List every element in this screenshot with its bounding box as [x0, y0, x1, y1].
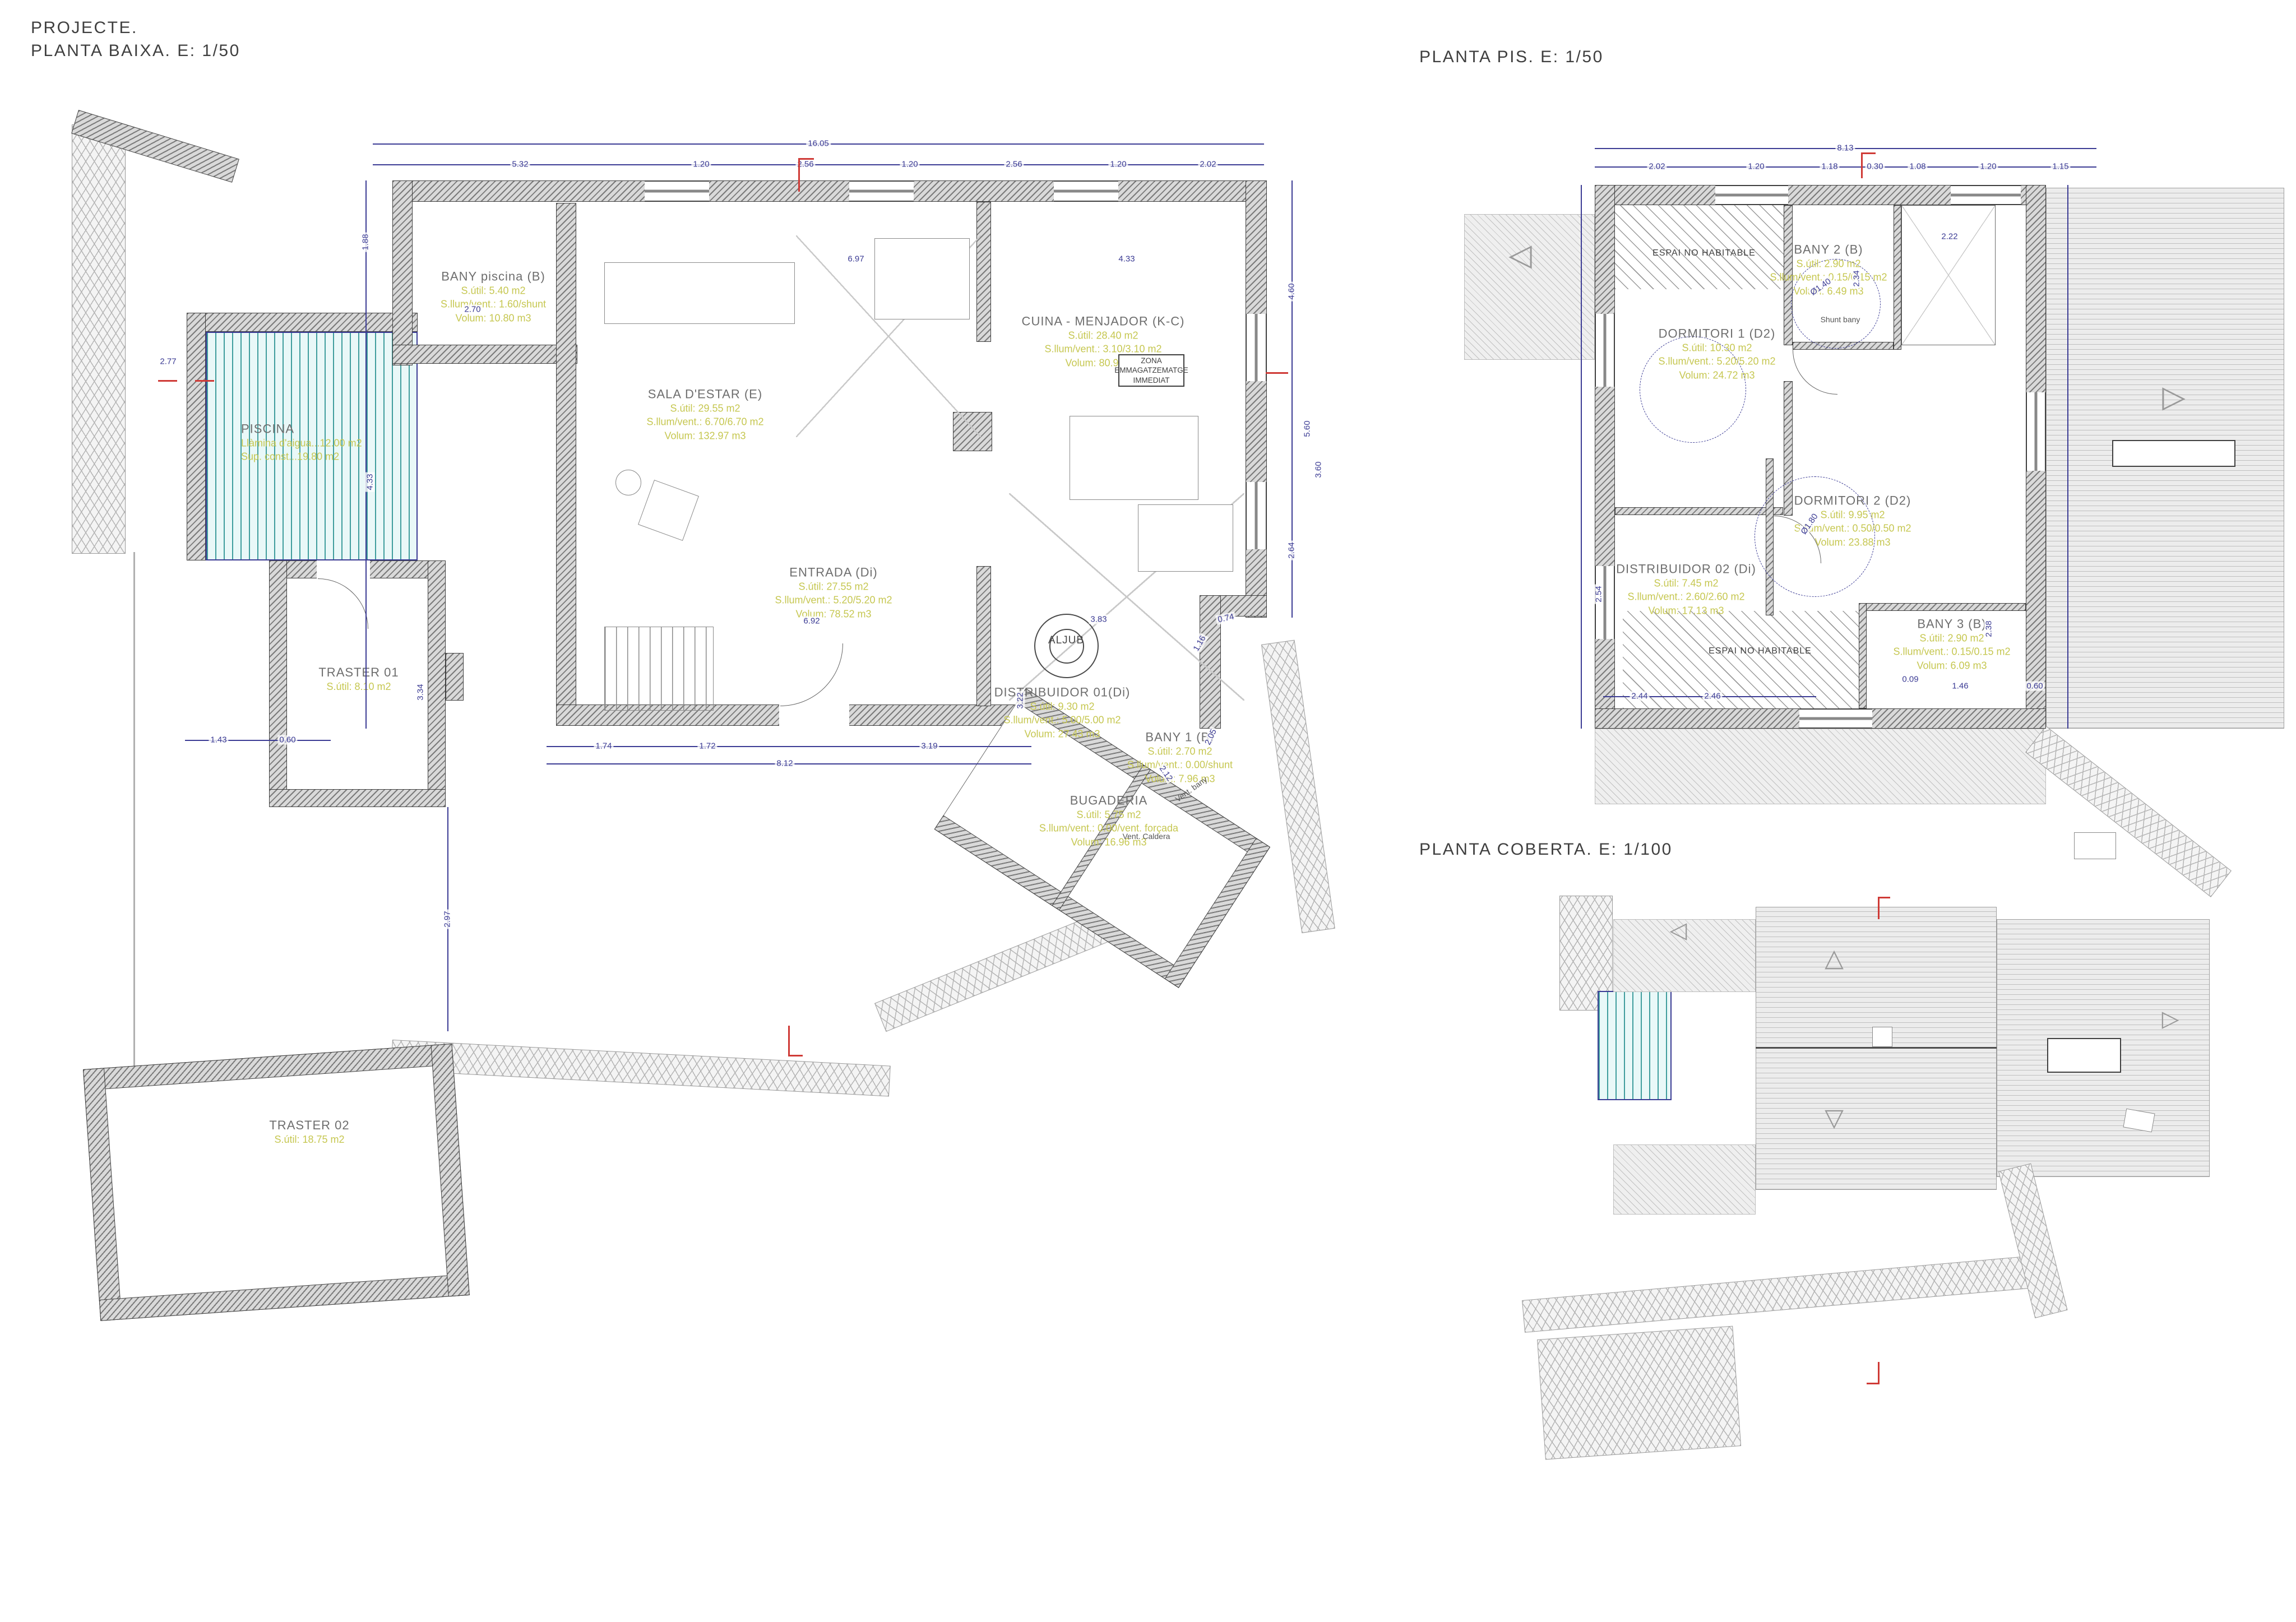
room-metric: S.útil: 7.45 m2 [1616, 577, 1756, 590]
shunt-bany-label: Shunt bany [1821, 315, 1860, 324]
dim-label: 2.56 [1004, 160, 1024, 169]
interior-wall [976, 566, 991, 706]
room-metric: Volum: 10.80 m3 [441, 311, 546, 325]
room-metric: S.llum/vent.: 0.00/shunt [1127, 758, 1233, 772]
window [1246, 482, 1267, 549]
room-metric: Volum: 17.13 m3 [1616, 604, 1756, 617]
armchair [638, 480, 699, 541]
interior-wall [1894, 205, 1901, 350]
wall-segment [428, 560, 446, 807]
cabinet [874, 238, 970, 319]
dim-label: 0.09 [1900, 675, 1920, 684]
room-metric: S.útil: 9.30 m2 [994, 700, 1131, 713]
pool-wall [187, 313, 418, 332]
room-metric: S.útil: 28.40 m2 [1022, 329, 1185, 342]
dim-label: 2.02 [1647, 162, 1667, 172]
zona-line: EMMAGATZEMATGE [1114, 365, 1188, 376]
dim-label: 1.74 [594, 742, 613, 751]
dim-label: 3.83 [1089, 615, 1108, 624]
door-swing [780, 643, 843, 706]
dim-label: 1.20 [1746, 162, 1766, 172]
dimension-line [365, 180, 367, 729]
dim-label: 1.20 [691, 160, 711, 169]
window [2026, 392, 2046, 471]
section-mark [1867, 1383, 1880, 1384]
room-name: DORMITORI 2 (D2) [1794, 494, 1911, 508]
room-metric: Volum: 78.52 m3 [775, 607, 892, 620]
room-metric: S.llum/vent.: 5.20/5.20 m2 [1658, 355, 1775, 368]
stone-boundary-wall [72, 124, 126, 554]
dim-label: 16.05 [806, 139, 831, 149]
wall-segment [269, 560, 287, 807]
dim-label: 0.30 [1865, 162, 1885, 172]
dim-label: 8.13 [1835, 143, 1855, 153]
slope-arrow-icon: ◁ [1670, 919, 1687, 942]
slope-arrow-icon: ▷ [2162, 382, 2186, 412]
room-metric: S.útil: 2.70 m2 [1127, 745, 1233, 758]
dim-label: 2.22 [1939, 232, 1959, 242]
closet [1901, 205, 1996, 345]
room-label-bany-2: BANY 2 (B) S.útil: 2.90 m2 S.llum/vent.:… [1770, 243, 1887, 298]
window [1054, 180, 1118, 202]
dim-label: 2.64 [1287, 540, 1297, 560]
dim-label: 0.60 [277, 735, 297, 745]
dim-label: 3.22 [1016, 690, 1025, 710]
dim-label: 1.43 [209, 735, 228, 745]
room-name: ENTRADA (Di) [775, 566, 892, 580]
roof-chimney [2047, 1038, 2121, 1073]
dimension-line [1595, 166, 2096, 168]
room-label-distribuidor-01: DISTRIBUIDOR 01(Di) S.útil: 9.30 m2 S.ll… [994, 685, 1131, 741]
window [1715, 185, 1788, 205]
room-metric: S.útil: 18.75 m2 [269, 1133, 349, 1146]
room-name: CUINA - MENJADOR (K-C) [1022, 314, 1185, 329]
room-metric: Sup. const...19.80 m2 [241, 450, 362, 464]
dim-label: 1.20 [1978, 162, 1998, 172]
swimming-pool-roof [1598, 991, 1672, 1100]
slope-arrow-icon: ◁ [1508, 240, 1532, 270]
dim-label: 1.46 [1950, 682, 1970, 691]
storage-zone-box: ZONA EMMAGATZEMATGE IMMEDIAT [1118, 354, 1184, 387]
window [645, 180, 709, 202]
stone-path [2025, 726, 2232, 897]
room-name: TRASTER 01 [318, 665, 399, 680]
dim-label: 2.34 [1852, 268, 1862, 288]
room-label-sala-destar: SALA D'ESTAR (E) S.útil: 29.55 m2 S.llum… [646, 387, 763, 443]
room-label-traster-01: TRASTER 01 S.útil: 8.10 m2 [318, 665, 399, 693]
roof-ridge-line [1756, 1047, 1997, 1049]
room-metric: S.llum/vent.: 6.70/6.70 m2 [646, 415, 763, 429]
roof-chimney [2112, 440, 2235, 467]
window [1799, 708, 1872, 729]
wall-segment [1246, 180, 1267, 618]
vent-caldera-label: Vent. Caldera [1123, 832, 1170, 841]
enh-label: ESPAI NO HABITABLE [1652, 248, 1756, 258]
slope-arrow-icon: ▷ [2162, 1008, 2179, 1030]
room-label-bany-1: BANY 1 (B) S.útil: 2.70 m2 S.llum/vent.:… [1127, 730, 1233, 786]
dimension-line [547, 746, 1031, 747]
roof-terrace [1613, 1144, 1756, 1215]
dimension-line [1581, 185, 1582, 729]
stone-terrace [1537, 1326, 1741, 1460]
slope-arrow-icon: ▽ [1825, 1106, 1844, 1130]
window [1595, 314, 1615, 387]
non-habitable-space [1623, 611, 1859, 708]
aljub-label: ALJUB [1048, 634, 1084, 647]
dim-label: 2.46 [1702, 692, 1722, 701]
dim-label: 1.20 [1108, 160, 1128, 169]
stone-path [874, 913, 1109, 1032]
zona-line: ZONA [1141, 356, 1162, 366]
section-mark [798, 158, 814, 160]
section-mark [1878, 1362, 1880, 1384]
room-metric: S.útil: 2.90 m2 [1770, 257, 1887, 271]
section-mark [1878, 897, 1880, 919]
dimension-line [2067, 185, 2068, 729]
room-metric: S.útil: 10.30 m2 [1658, 341, 1775, 355]
dim-label: 1.88 [361, 232, 371, 252]
room-label-bany-piscina: BANY piscina (B) S.útil: 5.40 m2 S.llum/… [441, 270, 546, 325]
dim-label: 2.02 [1198, 160, 1218, 169]
dim-label: 1.08 [1908, 162, 1927, 172]
slope-arrow-icon: △ [1825, 946, 1844, 971]
stone-path [1261, 640, 1335, 933]
dim-label: 3.60 [1314, 460, 1323, 479]
dim-label: 1.15 [2050, 162, 2070, 172]
title-planta-pis: PLANTA PIS. E: 1/50 [1419, 46, 1604, 69]
room-metric: S.llum/vent.: 5.20/5.20 m2 [775, 594, 892, 607]
wall-segment [392, 180, 413, 365]
dim-label: 5.60 [1303, 419, 1312, 438]
room-metric: S.llum/vent.: 5.00/5.00 m2 [994, 713, 1131, 727]
door-opening [317, 560, 370, 578]
room-metric: Volum: 7.96 m3 [1127, 772, 1233, 785]
section-mark [195, 380, 214, 382]
dim-label: 6.97 [846, 254, 865, 264]
section-mark [1878, 897, 1890, 898]
dim-label: 6.92 [802, 617, 821, 626]
wall-segment [556, 203, 576, 726]
sheet-title: PROJECTE. PLANTA BAIXA. E: 1/50 [31, 17, 240, 62]
dim-label: 3.34 [416, 682, 425, 702]
room-name: DISTRIBUIDOR 01(Di) [994, 685, 1131, 700]
room-metric: S.llum/vent.: 1.60/shunt [441, 298, 546, 311]
dim-label: 2.54 [1594, 584, 1604, 604]
dim-label: 2.44 [1630, 692, 1649, 701]
window [1951, 185, 2021, 205]
wall-segment [1595, 185, 1615, 729]
window [849, 180, 914, 202]
dimension-line [373, 164, 1264, 165]
roof-chimney [1872, 1027, 1892, 1047]
dim-label: 4.33 [1117, 254, 1136, 264]
room-metric: Volum: 27.43 m3 [994, 727, 1131, 740]
room-metric: S.útil: 27.55 m2 [775, 580, 892, 594]
room-metric: S.útil: 29.55 m2 [646, 402, 763, 415]
room-metric: S.llum/vent.: 2.60/2.60 m2 [1616, 590, 1756, 604]
room-metric: S.útil: 5.40 m2 [441, 284, 546, 298]
room-metric: Volum: 132.97 m3 [646, 429, 763, 442]
room-name: DISTRIBUIDOR 02 (Di) [1616, 562, 1756, 577]
pool-wall [187, 313, 206, 560]
dim-label: 8.12 [775, 759, 794, 768]
room-label-traster-02: TRASTER 02 S.útil: 18.75 m2 [269, 1118, 349, 1146]
window [1246, 314, 1267, 381]
zona-line: IMMEDIAT [1133, 376, 1170, 386]
non-habitable-space [1615, 205, 1784, 289]
title-planta-baixa: PLANTA BAIXA. E: 1/50 [31, 40, 240, 63]
dining-table [1070, 416, 1198, 500]
section-mark [1861, 152, 1863, 178]
dim-label: 2.38 [1984, 619, 1994, 638]
room-label-piscina: PISCINA Llàmina d'aigua...12.00 m2 Sup. … [241, 422, 362, 464]
stone-path [391, 1040, 891, 1097]
title-planta-coberta: PLANTA COBERTA. E: 1/100 [1419, 838, 1673, 861]
door-opening [779, 705, 849, 726]
room-metric: S.llum/vent.: 0.15/0.15 m2 [1893, 645, 2010, 659]
room-metric: Llàmina d'aigua...12.00 m2 [241, 437, 362, 450]
room-name: BUGADERIA [1039, 794, 1178, 808]
section-mark [788, 1055, 803, 1056]
dim-label: 4.33 [365, 472, 375, 492]
room-metric: S.útil: 5.75 m2 [1039, 808, 1178, 822]
dim-label: 4.60 [1287, 281, 1297, 301]
dim-label: 2.77 [158, 357, 178, 367]
property-line [133, 552, 135, 1070]
dim-label: 5.32 [510, 160, 530, 169]
interior-wall [1615, 507, 1783, 515]
sofa [604, 262, 795, 324]
room-metric: Volum: 24.72 m3 [1658, 368, 1775, 382]
kitchen-island [1138, 504, 1233, 572]
dim-label: 1.72 [697, 742, 717, 751]
section-mark [1861, 152, 1876, 154]
dim-label: 2.70 [462, 305, 482, 314]
room-label-distribuidor-02: DISTRIBUIDOR 02 (Di) S.útil: 7.45 m2 S.l… [1616, 562, 1756, 618]
section-mark [1266, 372, 1288, 374]
roof-window [2074, 832, 2116, 859]
stairs [604, 627, 714, 711]
interior-wall [1859, 603, 2026, 611]
side-table [615, 470, 641, 495]
room-name: BANY 2 (B) [1770, 243, 1887, 257]
dim-label: 2.97 [443, 909, 452, 929]
drawing-sheet: { "colors": { "dimension": "#3b3b94", "r… [0, 0, 2296, 1622]
room-label-entrada: ENTRADA (Di) S.útil: 27.55 m2 S.llum/ven… [775, 566, 892, 621]
dim-label: 1.20 [900, 160, 919, 169]
wall-segment [392, 180, 1267, 202]
room-name: TRASTER 02 [269, 1118, 349, 1133]
room-name: SALA D'ESTAR (E) [646, 387, 763, 402]
dim-label: 0.60 [2025, 682, 2044, 691]
door-swing [318, 578, 368, 629]
room-name: BANY piscina (B) [441, 270, 546, 284]
enh-label: ESPAI NO HABITABLE [1709, 646, 1812, 656]
roof-area [1595, 729, 2046, 804]
interior-wall [1859, 603, 1867, 708]
room-label-dormitori-1: DORMITORI 1 (D2) S.útil: 10.30 m2 S.llum… [1658, 327, 1775, 382]
section-mark [158, 380, 177, 382]
section-mark [798, 158, 800, 192]
stone-path [1998, 1163, 2068, 1318]
roof-terrace [1464, 214, 1595, 360]
dim-label: 3.19 [919, 742, 939, 751]
room-name: PISCINA [241, 422, 362, 437]
wall-segment [269, 789, 446, 807]
room-name: DORMITORI 1 (D2) [1658, 327, 1775, 341]
wall-segment [392, 345, 577, 364]
title-project: PROJECTE. [31, 17, 240, 40]
section-mark [788, 1026, 790, 1056]
door-swing [1793, 350, 1837, 395]
room-metric: S.útil: 8.10 m2 [318, 680, 399, 693]
stone-path [1522, 1255, 2039, 1333]
pillar [446, 653, 464, 701]
dimension-line [185, 740, 331, 741]
room-metric: Volum: 23.88 m3 [1794, 535, 1911, 549]
traster-02-structure [83, 1044, 470, 1321]
room-metric: Volum: 6.09 m3 [1893, 659, 2010, 672]
dim-label: 1.18 [1820, 162, 1839, 172]
